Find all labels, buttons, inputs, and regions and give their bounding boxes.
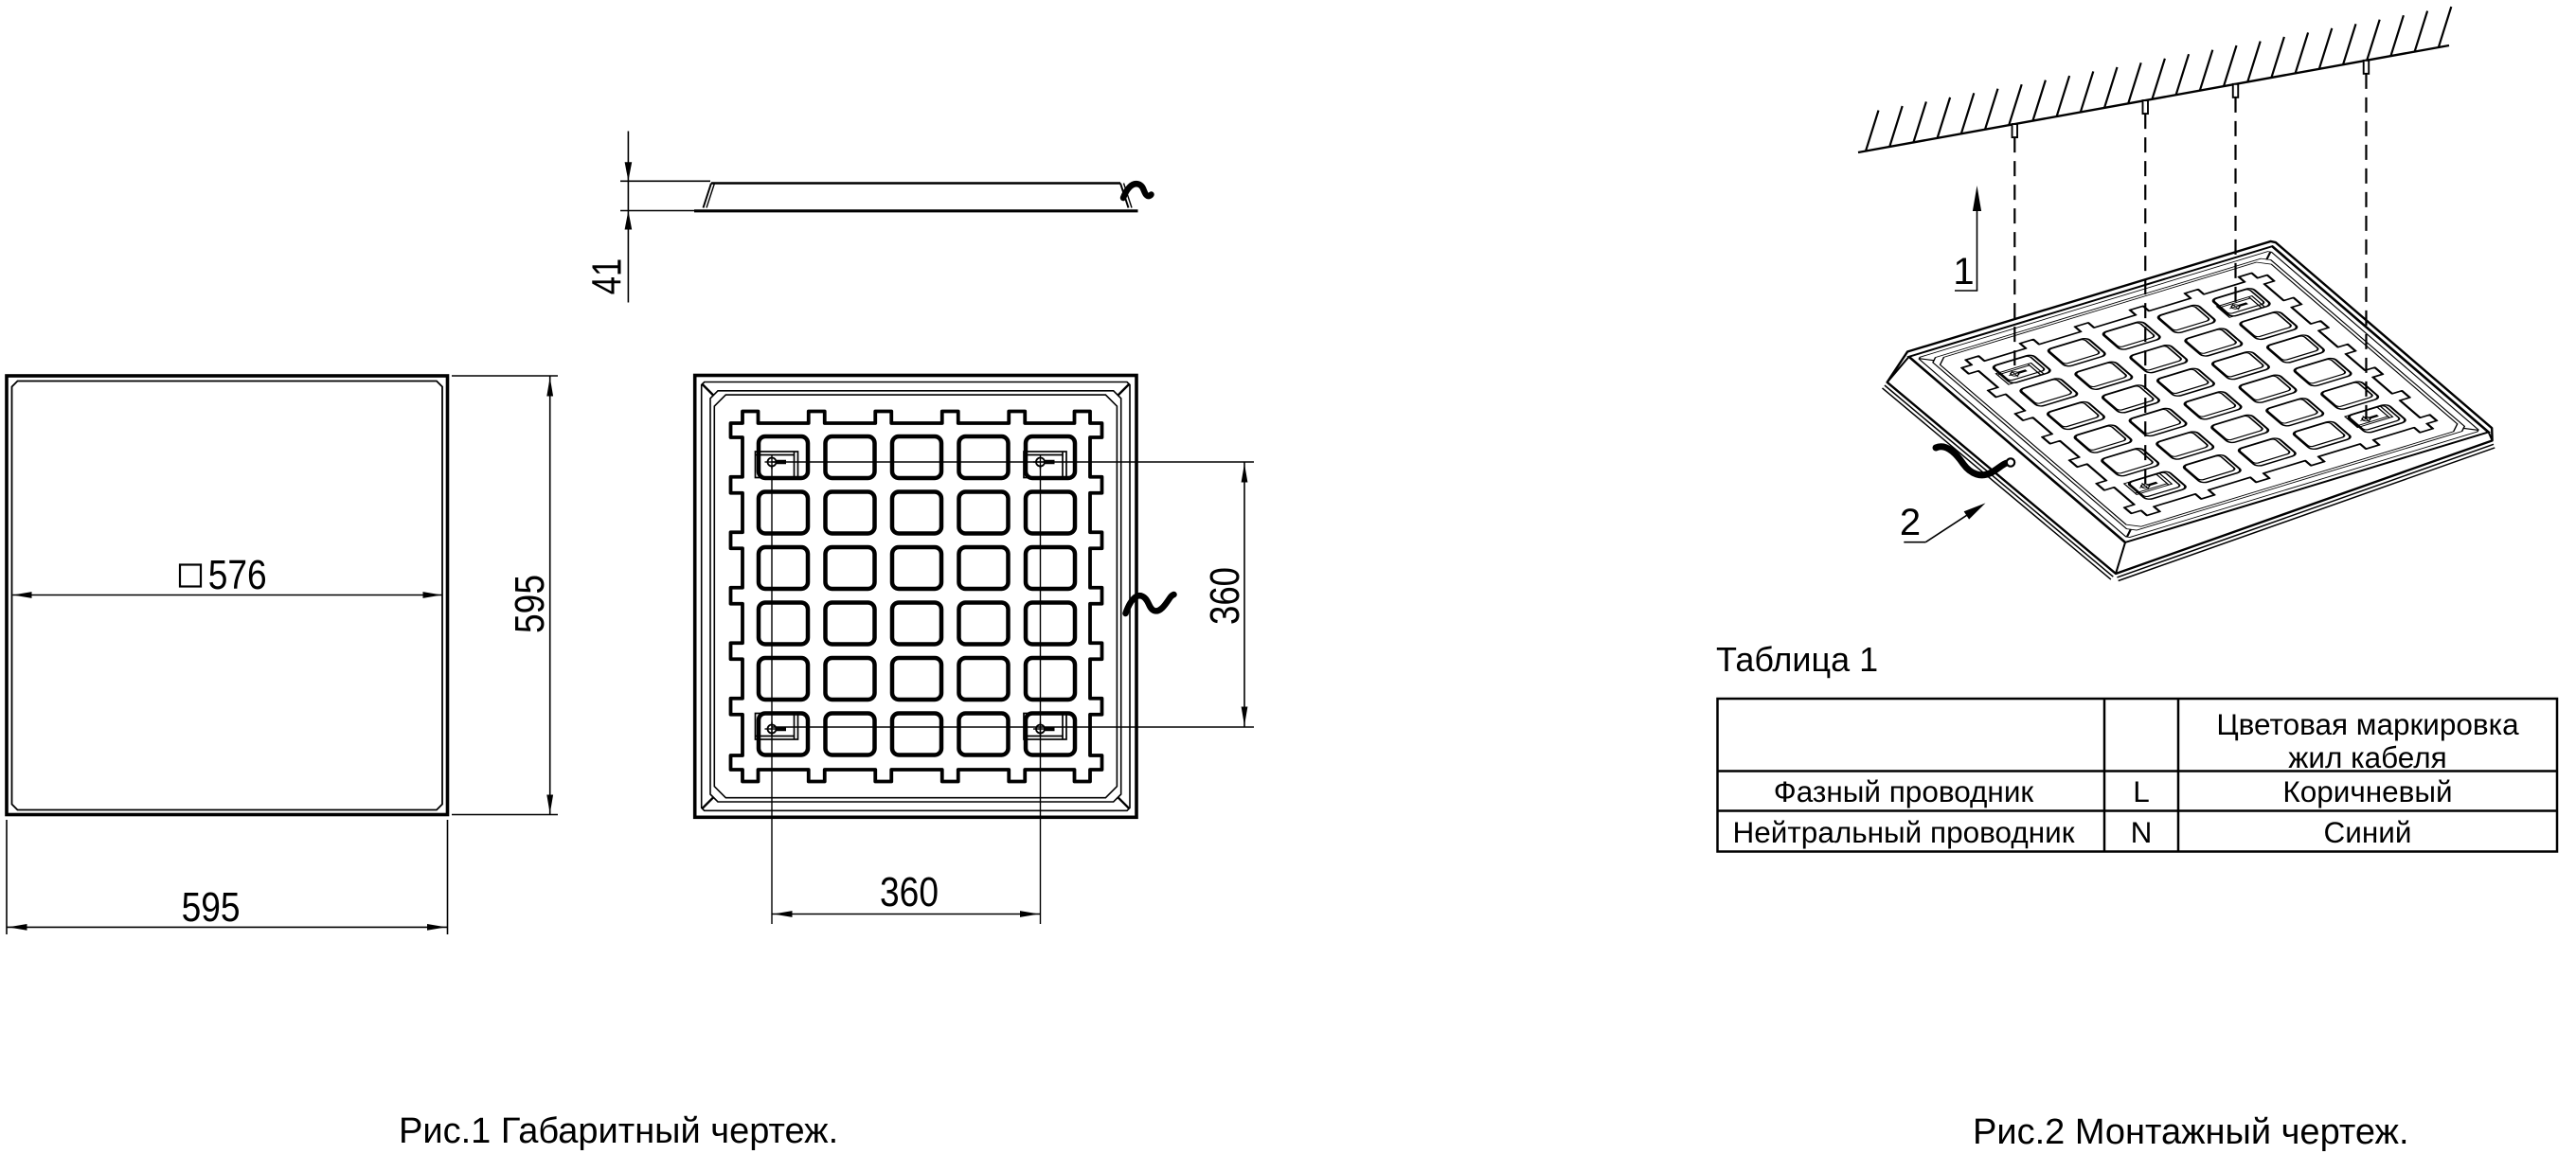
svg-text:Синий: Синий [2324, 815, 2412, 849]
svg-text:Цветовая маркировка: Цветовая маркировка [2216, 707, 2519, 741]
svg-text:Рис.2 Монтажный чертеж.: Рис.2 Монтажный чертеж. [1973, 1112, 2409, 1152]
svg-text:Рис.1 Габаритный чертеж.: Рис.1 Габаритный чертеж. [399, 1111, 838, 1151]
svg-text:Коричневый: Коричневый [2282, 774, 2452, 808]
svg-text:Таблица 1: Таблица 1 [1716, 640, 1878, 679]
svg-text:N: N [2131, 815, 2153, 849]
svg-text:1: 1 [1953, 251, 1974, 293]
svg-text:2: 2 [1900, 502, 1921, 543]
svg-text:595: 595 [182, 884, 241, 931]
svg-text:595: 595 [507, 575, 553, 633]
svg-text:360: 360 [1202, 567, 1248, 625]
svg-text:L: L [2133, 774, 2150, 808]
svg-text:41: 41 [583, 258, 630, 295]
svg-text:576: 576 [208, 552, 267, 598]
svg-text:Фазный проводник: Фазный проводник [1774, 774, 2034, 808]
svg-text:жил кабеля: жил кабеля [2288, 740, 2446, 774]
svg-text:Нейтральный проводник: Нейтральный проводник [1733, 815, 2075, 849]
svg-text:360: 360 [880, 869, 939, 915]
